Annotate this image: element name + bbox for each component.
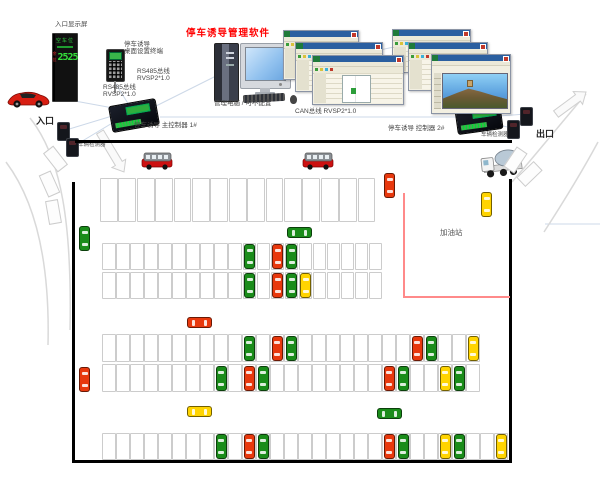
parking-space xyxy=(313,272,327,299)
parking-space xyxy=(186,433,200,460)
parking-space xyxy=(270,433,284,460)
parking-space xyxy=(358,178,376,222)
parking-space xyxy=(270,364,284,392)
parking-space xyxy=(186,364,200,392)
photo-window-sidebar xyxy=(434,73,441,109)
parking-space xyxy=(302,178,320,222)
parking-space xyxy=(102,433,116,460)
parking-space xyxy=(284,433,298,460)
parking-space xyxy=(256,334,270,362)
bus-icon xyxy=(302,151,334,170)
green-car xyxy=(377,408,402,419)
green-car xyxy=(398,434,409,459)
parking-space xyxy=(369,243,383,270)
parking-space xyxy=(172,243,186,270)
red-car xyxy=(272,273,283,298)
parking-space xyxy=(200,364,214,392)
parking-space xyxy=(200,243,214,270)
red-car xyxy=(272,244,283,269)
parking-space xyxy=(116,364,130,392)
red-car xyxy=(79,367,90,392)
parking-space xyxy=(424,433,438,460)
parking-space xyxy=(299,243,313,270)
parking-space xyxy=(200,334,214,362)
parking-space xyxy=(130,243,144,270)
parking-space xyxy=(438,334,452,362)
green-car xyxy=(216,366,227,391)
parking-space xyxy=(172,433,186,460)
green-car xyxy=(426,336,437,361)
parking-space xyxy=(172,334,186,362)
parking-space xyxy=(327,272,341,299)
parking-space xyxy=(355,243,369,270)
parking-space xyxy=(354,364,368,392)
red-car xyxy=(384,173,395,198)
red-car xyxy=(384,366,395,391)
red-car xyxy=(384,434,395,459)
parking-space xyxy=(158,272,172,299)
parking-space xyxy=(210,178,228,222)
parking-space xyxy=(313,243,327,270)
parking-space xyxy=(144,272,158,299)
parking-space xyxy=(144,433,158,460)
parking-space xyxy=(298,364,312,392)
software-window-3 xyxy=(312,55,404,105)
parking-space xyxy=(214,334,228,362)
green-car xyxy=(286,244,297,269)
parking-space xyxy=(116,243,130,270)
parking-space xyxy=(266,178,284,222)
green-car xyxy=(244,273,255,298)
parking-space xyxy=(369,272,383,299)
parking-space xyxy=(354,433,368,460)
parking-space xyxy=(452,334,466,362)
green-car xyxy=(286,273,297,298)
parking-space xyxy=(130,364,144,392)
parking-space xyxy=(382,334,396,362)
parking-space xyxy=(228,334,242,362)
parking-space xyxy=(257,272,271,299)
parking-space xyxy=(368,334,382,362)
parking-space xyxy=(354,334,368,362)
parking-space xyxy=(186,243,200,270)
parking-space xyxy=(312,334,326,362)
red-car xyxy=(187,317,212,328)
green-car xyxy=(286,336,297,361)
parking-space xyxy=(200,272,214,299)
parking-space xyxy=(480,433,494,460)
parking-space xyxy=(396,334,410,362)
parking-space xyxy=(410,364,424,392)
parking-space xyxy=(368,433,382,460)
parking-space xyxy=(326,433,340,460)
parking-space xyxy=(228,364,242,392)
red-car xyxy=(272,336,283,361)
parking-space xyxy=(192,178,210,222)
parking-space xyxy=(100,178,118,222)
red-car xyxy=(244,434,255,459)
parking-space xyxy=(144,364,158,392)
parking-space xyxy=(340,334,354,362)
parking-space xyxy=(284,178,302,222)
parking-space xyxy=(466,364,480,392)
parking-space xyxy=(326,364,340,392)
green-car xyxy=(79,226,90,251)
parking-space xyxy=(340,364,354,392)
parking-space xyxy=(466,433,480,460)
parking-space xyxy=(424,364,438,392)
yellow-car xyxy=(496,434,507,459)
parking-space xyxy=(228,433,242,460)
parking-space xyxy=(116,334,130,362)
parking-space xyxy=(341,272,355,299)
parking-space xyxy=(247,178,265,222)
parking-space xyxy=(116,272,130,299)
parking-space xyxy=(158,334,172,362)
software-window-photo xyxy=(431,54,511,114)
parking-space xyxy=(214,272,228,299)
parking-space xyxy=(130,272,144,299)
yellow-car xyxy=(440,434,451,459)
green-car xyxy=(244,336,255,361)
parking-space xyxy=(102,243,116,270)
parking-space xyxy=(102,272,116,299)
green-car xyxy=(258,434,269,459)
parking-space xyxy=(158,243,172,270)
parking-space xyxy=(341,243,355,270)
yellow-car xyxy=(481,192,492,217)
green-car xyxy=(454,434,465,459)
parking-space xyxy=(257,243,271,270)
parking-space xyxy=(155,178,173,222)
parking-space xyxy=(312,433,326,460)
parking-space xyxy=(137,178,155,222)
parking-space xyxy=(116,433,130,460)
parking-space xyxy=(214,243,228,270)
parking-space xyxy=(186,272,200,299)
parking-space xyxy=(284,364,298,392)
parking-space xyxy=(118,178,136,222)
parking-space xyxy=(312,364,326,392)
parking-space xyxy=(321,178,339,222)
parking-space xyxy=(298,433,312,460)
parking-space xyxy=(368,364,382,392)
parking-space xyxy=(228,272,242,299)
green-car xyxy=(244,244,255,269)
parking-space xyxy=(200,433,214,460)
parking-space xyxy=(130,433,144,460)
parking-space xyxy=(327,243,341,270)
parking-space xyxy=(340,433,354,460)
landscape-photo xyxy=(442,73,508,109)
yellow-car xyxy=(468,336,479,361)
parking-guidance-system-diagram: 空车位 余位 2525 xyxy=(0,0,600,500)
green-car xyxy=(258,366,269,391)
parking-space xyxy=(102,364,116,392)
green-car xyxy=(454,366,465,391)
red-car xyxy=(412,336,423,361)
green-car xyxy=(287,227,312,238)
bus-icon xyxy=(141,151,173,170)
parking-space xyxy=(144,334,158,362)
green-car xyxy=(398,366,409,391)
parking-space xyxy=(326,334,340,362)
parking-space xyxy=(339,178,357,222)
red-car xyxy=(244,366,255,391)
parking-space xyxy=(229,178,247,222)
parking-space xyxy=(174,178,192,222)
parking-space xyxy=(298,334,312,362)
parking-space xyxy=(186,334,200,362)
parking-space xyxy=(158,364,172,392)
parking-space xyxy=(228,243,242,270)
yellow-car xyxy=(187,406,212,417)
parking-space xyxy=(172,364,186,392)
yellow-car xyxy=(300,273,311,298)
parking-space xyxy=(102,334,116,362)
parking-space xyxy=(158,433,172,460)
parking-space xyxy=(410,433,424,460)
parking-space xyxy=(172,272,186,299)
parking-space xyxy=(144,243,158,270)
parking-space xyxy=(130,334,144,362)
green-car xyxy=(216,434,227,459)
parking-space xyxy=(355,272,369,299)
yellow-car xyxy=(440,366,451,391)
